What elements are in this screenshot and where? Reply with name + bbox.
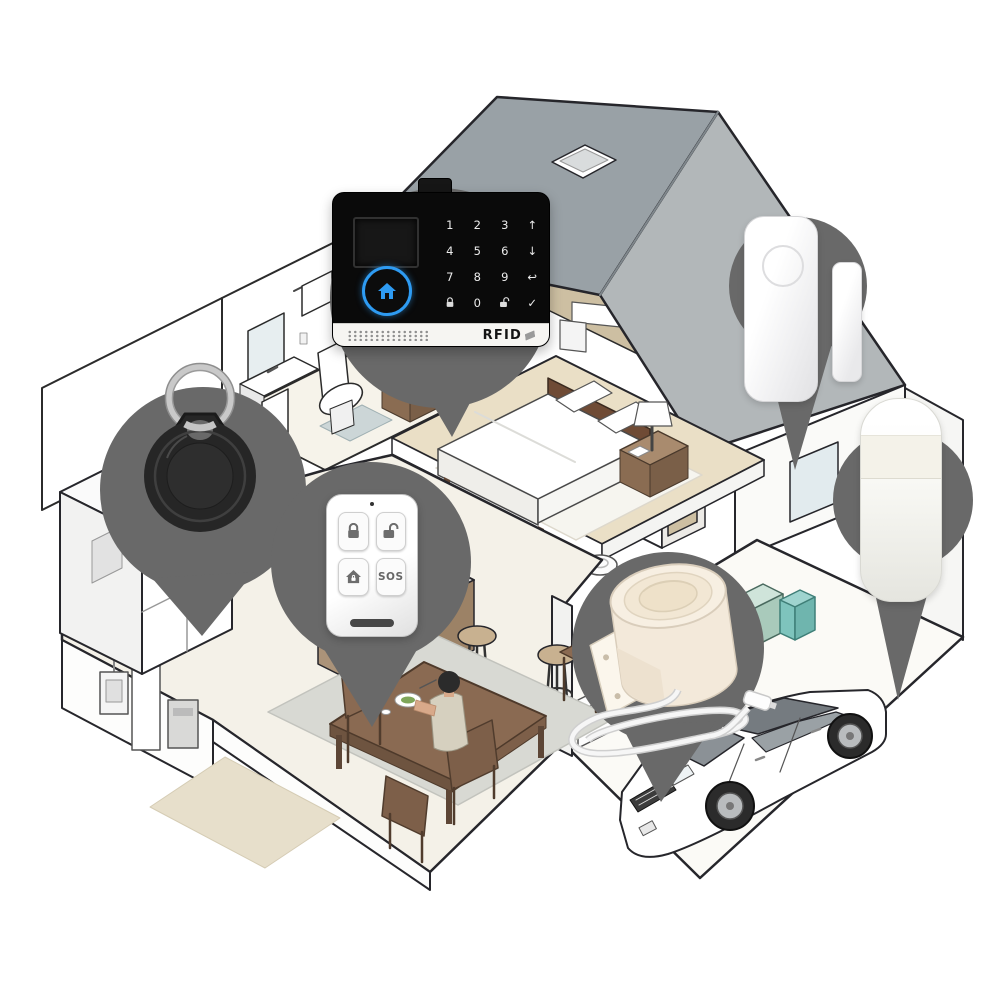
sos-button: SOS (376, 558, 407, 597)
wired-siren (560, 550, 780, 769)
sensor-body (744, 216, 818, 402)
sensor-button (762, 245, 804, 287)
unlock-icon (382, 523, 399, 539)
lock-icon (445, 297, 455, 308)
home-icon (377, 282, 397, 300)
key-up: ↑ (527, 220, 537, 232)
rfid-signal-icon (524, 330, 535, 340)
key-3: 3 (501, 220, 508, 232)
key-ok: ✓ (527, 298, 537, 310)
key-1: 1 (446, 220, 453, 232)
home-arm-icon (345, 569, 362, 584)
sos-label: SOS (378, 571, 404, 583)
key-back: ↩ (527, 272, 537, 284)
pir-motion-sensor (860, 398, 942, 602)
lamp (634, 402, 672, 426)
door-window-sensor (744, 208, 868, 400)
furnace (168, 700, 198, 748)
key-2: 2 (474, 220, 481, 232)
panel-base: RFID (333, 323, 549, 346)
rfid-label: RFID (483, 328, 522, 343)
siren-cable (572, 690, 778, 754)
led-indicator (370, 502, 374, 506)
remote-buttons: SOS (338, 512, 406, 596)
key-disarm (499, 297, 510, 311)
home-arm-button (338, 558, 369, 597)
key-6: 6 (501, 246, 508, 258)
product-illustration: 1 2 3 ↑ 4 5 6 ↓ 7 8 9 ↩ 0 (0, 0, 1000, 1000)
key-arm (445, 297, 455, 311)
cup (382, 710, 391, 715)
key-9: 9 (501, 272, 508, 284)
alarm-control-panel: 1 2 3 ↑ 4 5 6 ↓ 7 8 9 ↩ 0 (332, 176, 548, 346)
remote-slot (350, 619, 394, 627)
key-down: ↓ (527, 246, 537, 258)
panel-body: 1 2 3 ↑ 4 5 6 ↓ 7 8 9 ↩ 0 (332, 192, 550, 347)
water-heater (132, 666, 160, 750)
rfid-keyfob (137, 358, 269, 548)
fob-body (144, 414, 256, 532)
key-0: 0 (474, 298, 481, 310)
pir-lens (861, 435, 941, 479)
lock-icon (346, 523, 361, 539)
arm-button (338, 512, 369, 551)
key-7: 7 (446, 272, 453, 284)
key-4: 4 (446, 246, 453, 258)
siren-horn (581, 557, 741, 716)
remote-control: SOS (326, 494, 418, 637)
unlock-icon (499, 297, 510, 308)
home-button (362, 266, 412, 316)
key-8: 8 (474, 272, 481, 284)
lcd-screen (353, 217, 419, 268)
touch-keypad: 1 2 3 ↑ 4 5 6 ↓ 7 8 9 ↩ 0 (436, 213, 546, 317)
speaker-grille (347, 330, 431, 341)
sensor-magnet (832, 262, 862, 382)
head (438, 671, 460, 693)
disarm-button (376, 512, 407, 551)
key-5: 5 (474, 246, 481, 258)
